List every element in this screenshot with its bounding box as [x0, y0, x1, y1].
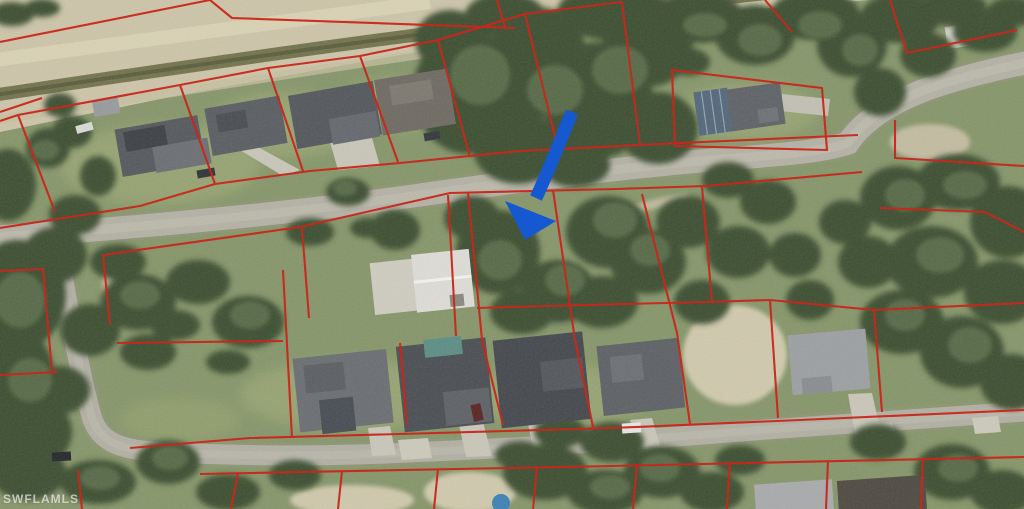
aerial-photo: SWFLAMLS [0, 0, 1024, 509]
watermark-label: SWFLAMLS [3, 492, 79, 506]
satellite-image [0, 0, 1024, 509]
photo-grain [0, 0, 1024, 509]
